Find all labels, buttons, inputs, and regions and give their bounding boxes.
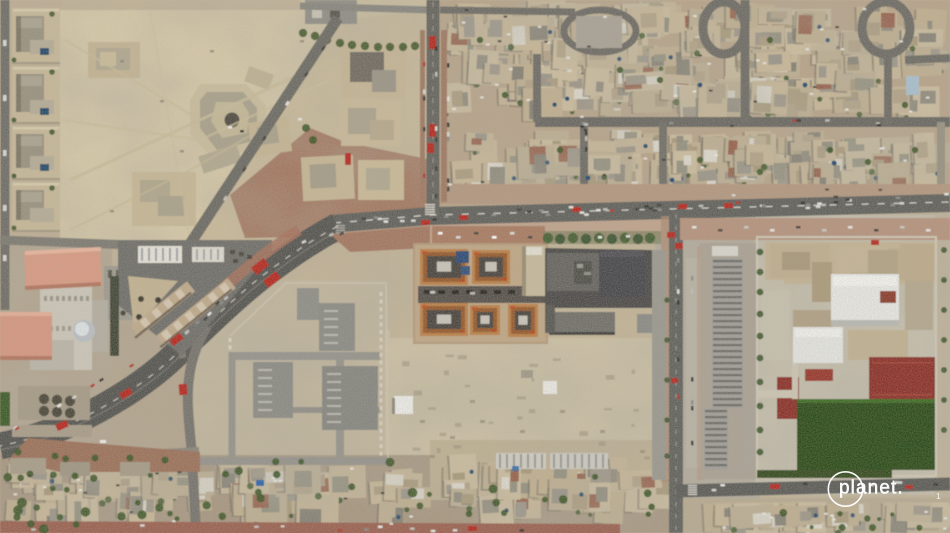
svg-text:planet.: planet.	[839, 478, 904, 499]
svg-text:1: 1	[936, 492, 941, 501]
